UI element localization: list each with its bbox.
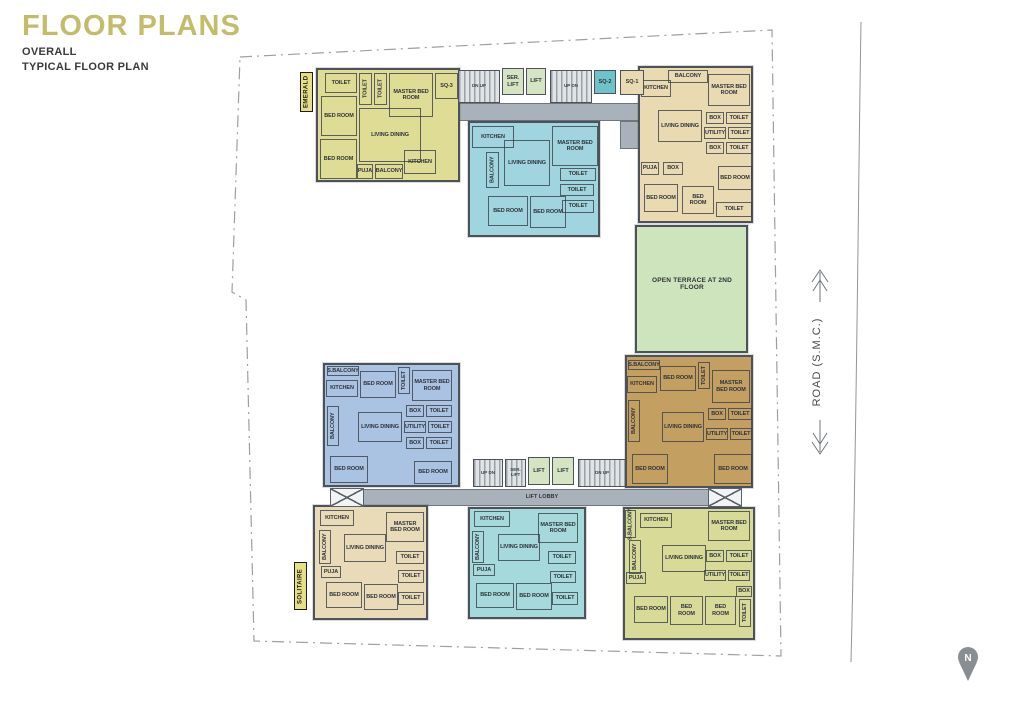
room-puja: PUJA [641,162,659,175]
room-box: BOX [406,437,424,449]
cell-ser-lift: SER. LIFT [502,68,524,95]
cell-up-dn: UP DN [550,70,592,103]
room-bed-room: BED ROOM [330,456,368,483]
room-puja: PUJA [321,566,341,578]
room-toilet: TOILET [398,367,410,394]
room-toilet: TOILET [728,408,752,420]
room-box: BOX [708,408,726,420]
room-toilet: TOILET [726,550,752,562]
room-bed-room: BED ROOM [414,461,452,484]
room-master-bed-room: MASTER BED ROOM [552,126,598,166]
room-toilet: TOILET [428,421,452,433]
room-utility: UTILITY [704,570,726,581]
floor-plan-page: FLOOR PLANS OVERALL TYPICAL FLOOR PLAN R… [0,0,1024,704]
room-balcony: BALCONY [375,164,403,179]
room-utility: UTILITY [704,127,726,139]
room-box: BOX [706,112,724,124]
room-sq-3: SQ-3 [435,73,458,99]
room-toilet: TOILET [730,428,752,440]
room-kitchen: KITCHEN [627,376,657,393]
room-bed-room: BED ROOM [364,584,398,610]
room-bed-room: BED ROOM [660,366,696,391]
room-balcony: BALCONY [319,530,331,564]
room-bed-room: BED ROOM [718,166,752,190]
room-toilet: TOILET [552,592,578,605]
room-master-bed-room: MASTER BED ROOM [386,512,424,542]
room-bed-room: BED ROOM [682,186,714,214]
room-kitchen: KITCHEN [641,80,671,97]
room-s-balcony: S.BALCONY [327,366,359,376]
room-balcony: BALCONY [628,400,640,442]
room-master-bed-room: MASTER BED ROOM [712,370,750,403]
room-toilet: TOILET [739,599,751,627]
room-puja: PUJA [357,164,373,179]
room-puja: PUJA [626,572,646,584]
unit-tag-emerald: EMERALD [300,72,313,112]
room-balcony: BALCONY [629,540,641,574]
cell-lift-lobby: LIFT LOBBY [514,488,570,506]
room-bed-room: BED ROOM [632,454,668,484]
room-toilet: TOILET [374,73,387,105]
room-bed-room: BED ROOM [320,139,357,179]
corridor-0 [436,103,648,121]
room-bed-room: BED ROOM [714,454,752,484]
room-bed-room: BED ROOM [326,582,362,608]
room-bed-room: BED ROOM [634,596,668,623]
cell-ser-lift: SER. LIFT [505,459,526,487]
cell-up-dn: UP DN [473,459,503,487]
cell-lift: LIFT [552,457,574,485]
room-master-bed-room: MASTER BED ROOM [708,74,750,106]
duct-xbox-0 [330,488,364,507]
room-living-dining: LIVING DINING [662,412,704,442]
room-toilet: TOILET [548,551,576,564]
room-balcony: BALCONY [472,531,484,563]
room-bed-room: BED ROOM [530,196,566,228]
room-bed-room: BED ROOM [360,371,396,398]
room-bed-room: BED ROOM [705,596,736,625]
room-kitchen: KITCHEN [320,510,354,526]
room-toilet: TOILET [426,437,452,449]
room-toilet: TOILET [562,200,594,213]
room-toilet: TOILET [728,127,752,139]
room-utility: UTILITY [404,421,426,433]
room-living-dining: LIVING DINING [504,140,550,186]
cell-dn-up: DN UP [578,459,626,487]
room-kitchen: KITCHEN [474,511,510,527]
room-living-dining: LIVING DINING [344,534,386,562]
room-kitchen: KITCHEN [404,150,436,174]
room-bed-room: BED ROOM [488,196,528,226]
room-bed-room: BED ROOM [516,583,552,610]
room-box: BOX [663,162,683,175]
room-toilet: TOILET [426,405,452,417]
room-master-bed-room: MASTER BED ROOM [412,370,452,401]
cell-sq-1: SQ-1 [620,70,644,95]
room-toilet: TOILET [698,362,710,389]
room-box: BOX [736,586,752,597]
room-toilet: TOILET [325,73,357,93]
cell-dn-up: DN UP [458,70,500,103]
room-balcony: BALCONY [486,152,499,188]
room-bed-room: BED ROOM [476,583,514,608]
room-bed-room: BED ROOM [321,96,357,136]
room-living-dining: LIVING DINING [662,545,706,572]
room-box: BOX [406,405,424,417]
room-toilet: TOILET [396,551,424,564]
room-box: BOX [706,142,724,154]
floor-plan-drawing: TOILETTOILETTOILETMASTER BED ROOMSQ-3BED… [0,0,1024,704]
room-master-bed-room: MASTER BED ROOM [538,513,578,543]
room-living-dining: LIVING DINING [498,534,540,561]
room-kitchen: KITCHEN [640,513,672,528]
room-toilet: TOILET [550,571,576,583]
duct-xbox-1 [708,488,742,507]
cell-lift: LIFT [528,457,550,485]
room-kitchen: KITCHEN [326,380,358,397]
room-master-bed-room: MASTER BED ROOM [708,511,750,541]
unit-tag-solitaire: SOLITAIRE [294,562,307,610]
room-open-terrace-at-2nd-floor: OPEN TERRACE AT 2ND FLOOR [648,268,736,300]
room-toilet: TOILET [716,202,752,217]
room-bed-room: BED ROOM [670,596,703,625]
room-toilet: TOILET [359,73,372,105]
room-s-balcony: S.BALCONY [625,510,636,538]
room-living-dining: LIVING DINING [658,110,702,142]
cell-lift: LIFT [526,68,546,95]
room-bed-room: BED ROOM [644,184,678,212]
room-toilet: TOILET [398,570,424,583]
room-s-balcony: S.BALCONY [628,360,660,370]
room-toilet: TOILET [726,142,752,154]
room-toilet: TOILET [560,168,596,181]
room-balcony: BALCONY [327,406,339,446]
room-puja: PUJA [473,564,495,576]
room-balcony: BALCONY [668,70,708,83]
room-living-dining: LIVING DINING [358,412,402,442]
room-toilet: TOILET [560,184,594,196]
room-toilet: TOILET [726,112,752,124]
room-utility: UTILITY [706,428,728,440]
room-box: BOX [706,550,724,562]
room-toilet: TOILET [398,592,424,605]
cell-sq-2: SQ-2 [594,70,616,94]
room-toilet: TOILET [728,570,750,581]
